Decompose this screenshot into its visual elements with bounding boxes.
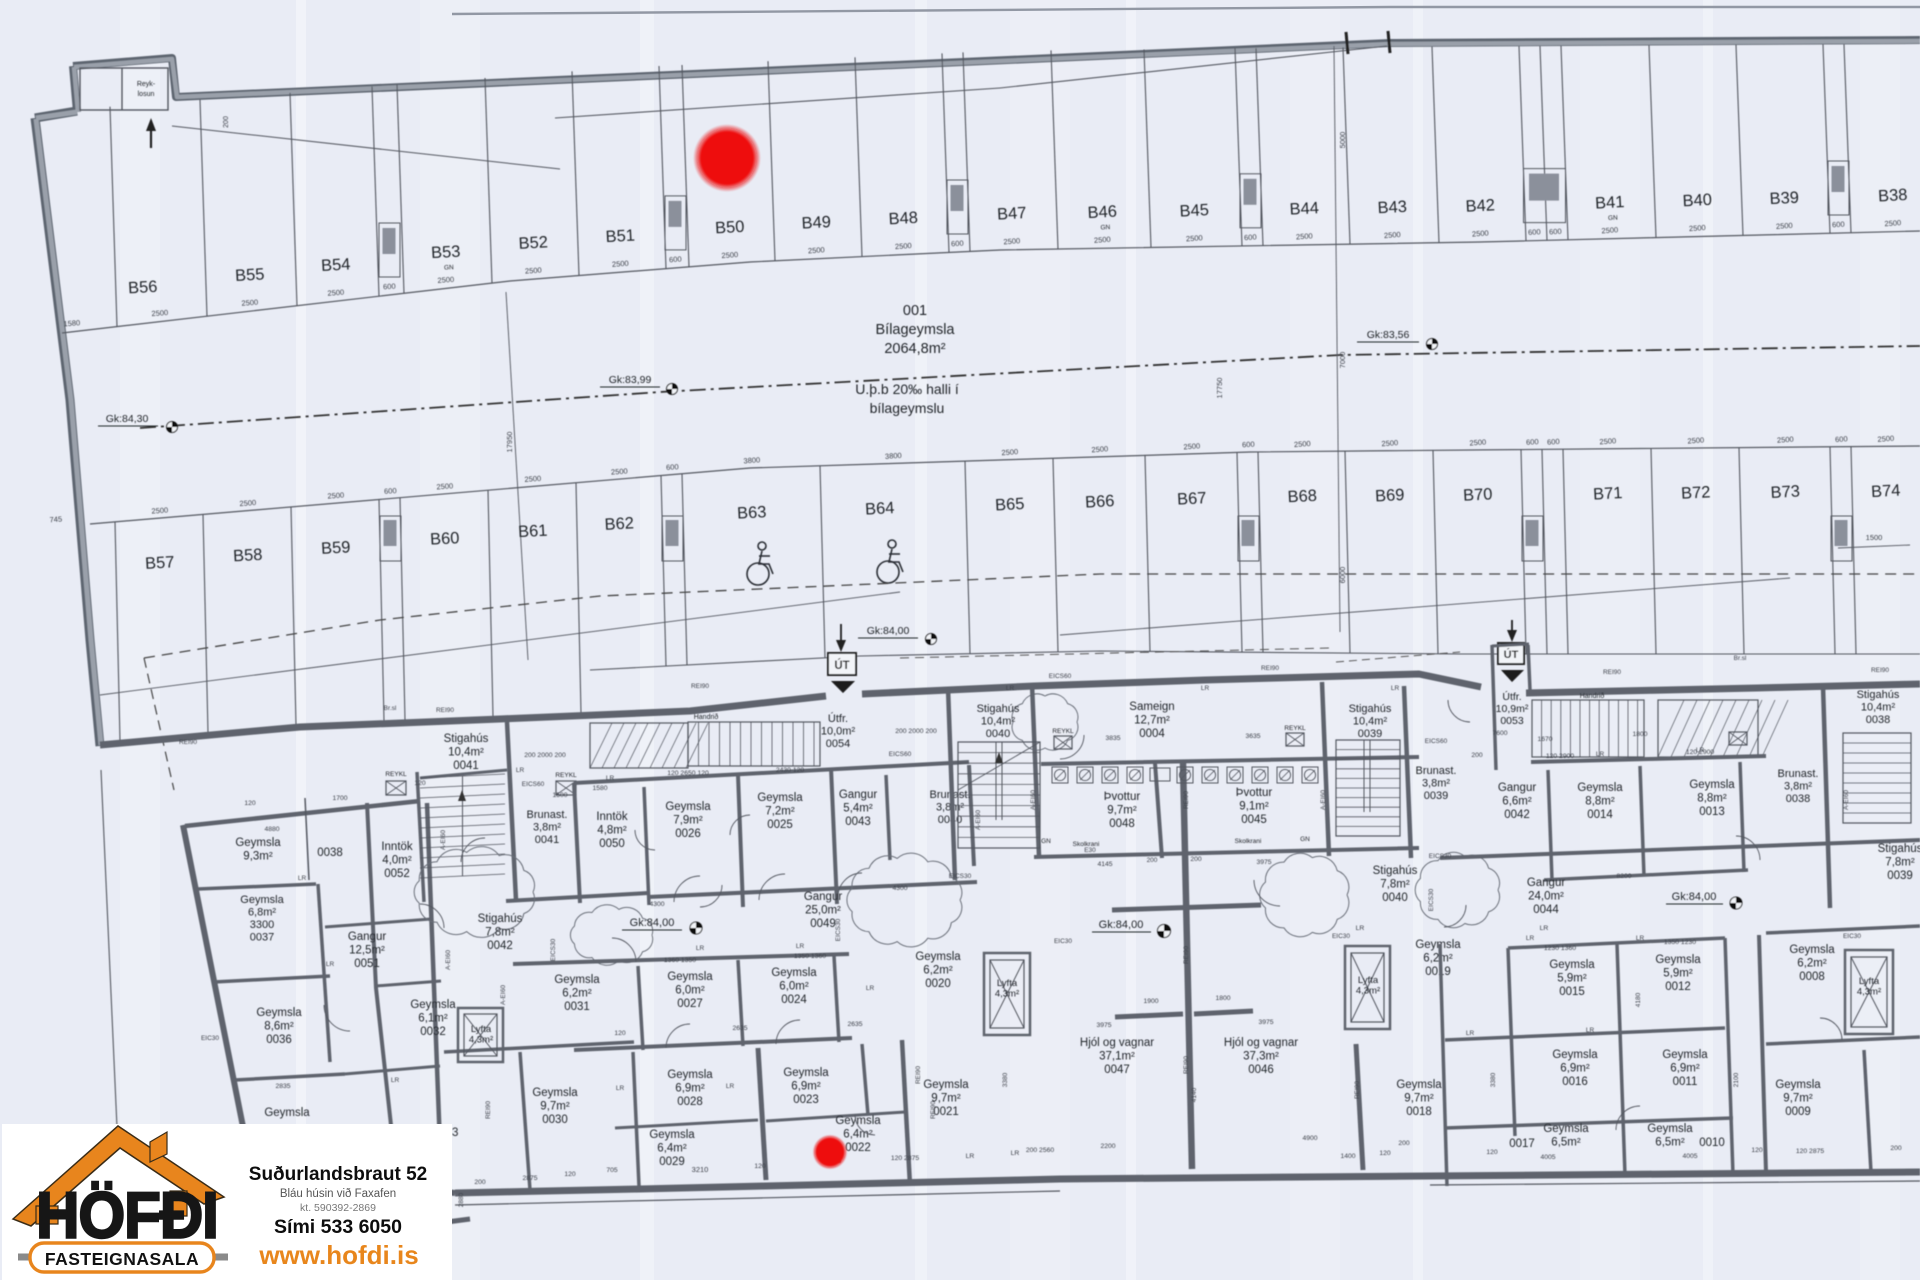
svg-text:LR: LR xyxy=(796,943,805,950)
svg-text:1350 1230: 1350 1230 xyxy=(1664,939,1696,946)
svg-text:3975: 3975 xyxy=(1256,859,1271,866)
svg-text:2500: 2500 xyxy=(327,491,344,501)
svg-text:4900: 4900 xyxy=(1302,1135,1317,1142)
svg-text:3800: 3800 xyxy=(885,451,902,461)
svg-text:B64: B64 xyxy=(865,499,895,519)
svg-text:Gk:84,00: Gk:84,00 xyxy=(630,917,675,929)
svg-text:Geymsla: Geymsla xyxy=(665,801,711,813)
svg-text:6,0m²: 6,0m² xyxy=(779,981,809,993)
svg-text:2500: 2500 xyxy=(808,245,825,255)
svg-text:8,6m²: 8,6m² xyxy=(264,1021,294,1033)
svg-text:2500: 2500 xyxy=(895,241,912,251)
svg-text:Lyfta: Lyfta xyxy=(1358,975,1379,986)
svg-text:EIC30: EIC30 xyxy=(1054,938,1072,945)
svg-text:2500: 2500 xyxy=(1294,439,1311,449)
svg-text:B72: B72 xyxy=(1681,483,1711,503)
svg-text:0011: 0011 xyxy=(1673,1076,1698,1088)
svg-text:2500: 2500 xyxy=(1091,444,1108,454)
svg-text:2500: 2500 xyxy=(1469,437,1486,447)
svg-text:B44: B44 xyxy=(1289,199,1319,219)
svg-text:4005: 4005 xyxy=(1682,1153,1697,1160)
svg-text:GN: GN xyxy=(1608,215,1618,223)
svg-text:LR: LR xyxy=(1201,685,1210,692)
svg-text:REI90: REI90 xyxy=(485,1101,492,1119)
svg-text:6,2m²: 6,2m² xyxy=(1423,953,1453,965)
svg-text:REI90: REI90 xyxy=(1354,1081,1361,1099)
svg-text:600: 600 xyxy=(1526,437,1539,447)
svg-text:0012: 0012 xyxy=(1665,981,1691,993)
svg-text:4,3m²: 4,3m² xyxy=(1356,986,1380,997)
svg-text:120: 120 xyxy=(244,800,256,807)
svg-text:Geymsla: Geymsla xyxy=(256,1007,302,1019)
svg-text:0014: 0014 xyxy=(1587,809,1613,821)
svg-text:EICS60: EICS60 xyxy=(1049,673,1072,680)
svg-text:3,8m²: 3,8m² xyxy=(533,822,561,834)
svg-text:Handrið: Handrið xyxy=(694,713,719,721)
svg-text:LR: LR xyxy=(1391,685,1400,692)
svg-text:Stigahús: Stigahús xyxy=(1373,865,1418,877)
svg-text:0026: 0026 xyxy=(675,828,701,840)
svg-text:0016: 0016 xyxy=(1562,1076,1588,1088)
svg-text:6,0m²: 6,0m² xyxy=(675,985,705,997)
svg-text:2500: 2500 xyxy=(1472,228,1489,238)
svg-text:Gangur: Gangur xyxy=(348,931,387,943)
svg-text:B74: B74 xyxy=(1871,482,1901,502)
svg-text:Geymsla: Geymsla xyxy=(1662,1049,1708,1061)
svg-text:6,2m²: 6,2m² xyxy=(1797,958,1827,970)
svg-text:Geymsla: Geymsla xyxy=(1789,944,1835,956)
svg-text:B73: B73 xyxy=(1770,482,1800,502)
svg-text:Gk:83,99: Gk:83,99 xyxy=(609,374,652,386)
svg-text:2500: 2500 xyxy=(1877,434,1894,444)
svg-text:6,9m²: 6,9m² xyxy=(1560,1063,1590,1075)
svg-text:200: 200 xyxy=(474,1179,486,1186)
svg-text:REYKL: REYKL xyxy=(1052,728,1074,735)
svg-text:EICS60: EICS60 xyxy=(1425,738,1448,745)
svg-text:B51: B51 xyxy=(605,227,635,247)
svg-text:B49: B49 xyxy=(801,213,831,233)
svg-text:2500: 2500 xyxy=(1384,230,1401,240)
svg-text:1700: 1700 xyxy=(332,795,347,802)
svg-text:6,1m²: 6,1m² xyxy=(418,1013,448,1025)
svg-text:7,2m²: 7,2m² xyxy=(765,806,795,818)
svg-text:2500: 2500 xyxy=(1186,233,1203,243)
svg-text:12,5m²: 12,5m² xyxy=(349,945,385,957)
svg-text:B42: B42 xyxy=(1465,196,1495,216)
svg-text:Inntök: Inntök xyxy=(596,811,628,823)
svg-text:2880: 2880 xyxy=(458,1192,465,1207)
svg-text:3800: 3800 xyxy=(743,455,760,465)
svg-text:ÚT: ÚT xyxy=(834,659,849,672)
svg-text:0004: 0004 xyxy=(1139,728,1165,740)
svg-text:Stigahús: Stigahús xyxy=(444,733,489,745)
svg-text:Stigahús: Stigahús xyxy=(478,913,523,925)
svg-text:37,1m²: 37,1m² xyxy=(1099,1051,1135,1063)
svg-text:0045: 0045 xyxy=(1241,814,1267,826)
svg-text:Geymsla: Geymsla xyxy=(554,974,600,986)
svg-text:2100: 2100 xyxy=(1733,1072,1740,1087)
svg-text:0038: 0038 xyxy=(1786,793,1810,805)
svg-text:9,3m²: 9,3m² xyxy=(243,851,273,863)
svg-text:EICS30: EICS30 xyxy=(1429,853,1452,860)
svg-text:LR: LR xyxy=(966,1153,975,1160)
svg-text:5,9m²: 5,9m² xyxy=(1663,968,1693,980)
svg-text:4140: 4140 xyxy=(1191,1087,1198,1102)
svg-text:LR: LR xyxy=(616,1085,625,1092)
svg-text:REI90: REI90 xyxy=(1183,1056,1190,1074)
svg-text:3,8m²: 3,8m² xyxy=(1784,781,1812,793)
svg-text:EICS60: EICS60 xyxy=(889,751,912,758)
svg-text:Geymsla: Geymsla xyxy=(1396,1079,1442,1091)
svg-text:0013: 0013 xyxy=(1699,806,1725,818)
svg-text:0039: 0039 xyxy=(1358,728,1382,740)
svg-text:3835: 3835 xyxy=(1105,735,1120,742)
svg-text:B63: B63 xyxy=(737,503,767,523)
svg-text:REI90: REI90 xyxy=(1261,665,1279,672)
svg-text:0024: 0024 xyxy=(781,994,807,1006)
svg-text:LR: LR xyxy=(696,945,705,952)
svg-text:Hjól og vagnar: Hjól og vagnar xyxy=(1080,1037,1154,1049)
svg-text:6,4m²: 6,4m² xyxy=(657,1143,687,1155)
svg-text:Geymsla: Geymsla xyxy=(757,792,803,804)
svg-text:B47: B47 xyxy=(997,204,1027,224)
svg-text:GN: GN xyxy=(1300,836,1310,843)
svg-text:EIC30: EIC30 xyxy=(201,1035,219,1042)
svg-text:600: 600 xyxy=(1244,232,1257,242)
svg-text:REI90: REI90 xyxy=(1183,946,1190,964)
svg-text:0032: 0032 xyxy=(420,1026,446,1038)
svg-text:1400: 1400 xyxy=(1340,1153,1355,1160)
svg-text:2500: 2500 xyxy=(1689,223,1706,233)
svg-text:Br.sl: Br.sl xyxy=(384,705,397,712)
svg-text:Gangur: Gangur xyxy=(1527,877,1566,889)
svg-text:B55: B55 xyxy=(235,265,265,285)
svg-text:0040: 0040 xyxy=(1382,892,1408,904)
svg-text:A-EI60: A-EI60 xyxy=(1320,790,1327,810)
svg-text:REI90: REI90 xyxy=(1871,667,1889,674)
svg-text:4,3m²: 4,3m² xyxy=(1857,987,1881,998)
svg-text:0040: 0040 xyxy=(986,728,1010,740)
svg-text:5,9m²: 5,9m² xyxy=(1557,973,1587,985)
svg-text:REI90: REI90 xyxy=(930,1101,937,1119)
svg-text:2500: 2500 xyxy=(1777,435,1794,445)
svg-text:4005: 4005 xyxy=(1540,1154,1555,1161)
svg-text:LR: LR xyxy=(298,875,307,882)
svg-text:10,4m²: 10,4m² xyxy=(981,716,1016,728)
svg-text:Handrið: Handrið xyxy=(1580,692,1605,700)
svg-text:2500: 2500 xyxy=(1884,218,1901,228)
svg-text:2500: 2500 xyxy=(1094,235,1111,245)
svg-text:Geymsla: Geymsla xyxy=(923,1079,969,1091)
svg-text:LR: LR xyxy=(1011,1150,1020,1157)
svg-text:B48: B48 xyxy=(888,209,918,229)
svg-text:200: 200 xyxy=(1190,856,1202,863)
svg-text:600: 600 xyxy=(1549,227,1562,237)
svg-text:1350 1360: 1350 1360 xyxy=(794,953,826,960)
svg-text:2500: 2500 xyxy=(524,474,541,484)
svg-text:2430 120: 2430 120 xyxy=(776,767,805,774)
svg-text:B69: B69 xyxy=(1375,486,1405,506)
svg-text:Geymsla: Geymsla xyxy=(771,967,817,979)
svg-text:1670: 1670 xyxy=(1537,736,1552,743)
svg-text:2500: 2500 xyxy=(1296,231,1313,241)
svg-text:120 2875: 120 2875 xyxy=(1796,1148,1825,1155)
svg-text:0051: 0051 xyxy=(354,958,380,970)
svg-text:B66: B66 xyxy=(1085,492,1115,512)
svg-text:25,0m²: 25,0m² xyxy=(805,905,841,917)
svg-text:3975: 3975 xyxy=(1096,1022,1111,1029)
svg-text:Útfr.: Útfr. xyxy=(1502,690,1521,703)
svg-text:EICS60: EICS60 xyxy=(522,781,545,788)
svg-text:Lyfta: Lyfta xyxy=(471,1024,492,1035)
svg-text:0050: 0050 xyxy=(599,838,625,850)
svg-text:2500: 2500 xyxy=(241,298,258,308)
svg-text:4,3m²: 4,3m² xyxy=(995,989,1019,1000)
svg-text:6,9m²: 6,9m² xyxy=(675,1083,705,1095)
svg-text:2500: 2500 xyxy=(151,308,168,318)
svg-text:120: 120 xyxy=(564,1171,576,1178)
svg-text:Gk:84,00: Gk:84,00 xyxy=(867,625,910,637)
svg-text:3635: 3635 xyxy=(1245,733,1260,740)
svg-text:GN: GN xyxy=(444,264,454,272)
svg-text:ÚT: ÚT xyxy=(1504,648,1519,661)
svg-text:3210: 3210 xyxy=(692,1165,709,1174)
svg-text:5,4m²: 5,4m² xyxy=(843,803,873,815)
svg-text:B46: B46 xyxy=(1087,203,1117,223)
svg-text:120: 120 xyxy=(754,1163,766,1170)
svg-text:REI90: REI90 xyxy=(1183,791,1190,809)
svg-text:600: 600 xyxy=(666,462,679,472)
svg-text:6,5m²: 6,5m² xyxy=(1655,1137,1685,1149)
svg-text:Geymsla: Geymsla xyxy=(240,894,284,906)
svg-text:B41: B41 xyxy=(1595,193,1625,213)
svg-text:120: 120 xyxy=(614,1030,626,1037)
svg-text:Geymsla: Geymsla xyxy=(532,1087,578,1099)
svg-text:2500: 2500 xyxy=(1183,441,1200,451)
svg-text:REI90: REI90 xyxy=(179,739,197,746)
svg-text:4300: 4300 xyxy=(649,901,664,908)
svg-text:Geymsla: Geymsla xyxy=(915,951,961,963)
svg-text:0046: 0046 xyxy=(1248,1064,1274,1076)
svg-text:8200: 8200 xyxy=(1616,873,1631,880)
svg-text:17750: 17750 xyxy=(1215,378,1224,399)
svg-text:0049: 0049 xyxy=(810,918,836,930)
svg-text:2500: 2500 xyxy=(721,250,738,260)
svg-text:Geymsla: Geymsla xyxy=(264,1107,310,1119)
svg-text:2500: 2500 xyxy=(525,266,542,276)
svg-text:200: 200 xyxy=(1147,857,1158,864)
svg-text:Þvottur: Þvottur xyxy=(1236,787,1273,799)
svg-text:1800: 1800 xyxy=(1215,995,1230,1002)
svg-text:Geymsla: Geymsla xyxy=(1543,1123,1589,1135)
svg-text:600: 600 xyxy=(951,239,964,249)
svg-text:120 2875: 120 2875 xyxy=(891,1155,920,1162)
svg-text:Inntök: Inntök xyxy=(381,841,413,853)
svg-text:0027: 0027 xyxy=(677,998,703,1010)
svg-text:120: 120 xyxy=(1486,1149,1498,1156)
svg-text:EICS30: EICS30 xyxy=(835,918,842,941)
svg-text:A-EI60: A-EI60 xyxy=(975,810,982,830)
svg-text:EIC30: EIC30 xyxy=(1843,933,1861,940)
svg-text:6,4m²: 6,4m² xyxy=(843,1129,873,1141)
svg-text:U.þ.b 20‰ halli í: U.þ.b 20‰ halli í xyxy=(855,381,959,397)
svg-text:LR: LR xyxy=(1596,751,1605,758)
svg-text:0018: 0018 xyxy=(1406,1106,1432,1118)
svg-text:Sameign: Sameign xyxy=(1129,701,1174,713)
svg-text:0042: 0042 xyxy=(1504,809,1530,821)
svg-text:LR: LR xyxy=(866,985,875,992)
svg-text:GN: GN xyxy=(1041,838,1051,845)
svg-text:Gangur: Gangur xyxy=(804,891,843,903)
svg-text:2500: 2500 xyxy=(1776,221,1793,231)
svg-text:Hjól og vagnar: Hjól og vagnar xyxy=(1224,1037,1298,1049)
svg-text:200: 200 xyxy=(1398,1140,1410,1147)
svg-text:0030: 0030 xyxy=(542,1114,568,1126)
svg-text:0009: 0009 xyxy=(1785,1106,1811,1118)
svg-text:EICS30: EICS30 xyxy=(1428,888,1435,911)
svg-text:Geymsla: Geymsla xyxy=(1775,1079,1821,1091)
svg-text:4145: 4145 xyxy=(1097,861,1112,868)
svg-text:4880: 4880 xyxy=(264,826,279,833)
svg-text:4180: 4180 xyxy=(1635,992,1642,1007)
svg-text:9,7m²: 9,7m² xyxy=(1783,1093,1813,1105)
svg-text:6,5m²: 6,5m² xyxy=(1551,1137,1581,1149)
svg-text:Brunast.: Brunast. xyxy=(1778,768,1819,780)
svg-text:3,8m²: 3,8m² xyxy=(1422,778,1450,790)
svg-text:B50: B50 xyxy=(715,218,745,238)
svg-text:A-EI60: A-EI60 xyxy=(500,985,507,1005)
svg-text:LR: LR xyxy=(1466,1030,1475,1037)
svg-text:120: 120 xyxy=(1751,1147,1763,1154)
svg-text:120 2900: 120 2900 xyxy=(1686,749,1715,756)
svg-text:B65: B65 xyxy=(995,495,1025,515)
svg-text:2500: 2500 xyxy=(437,275,454,285)
svg-text:B70: B70 xyxy=(1463,485,1493,505)
svg-text:9,7m²: 9,7m² xyxy=(1107,805,1137,817)
svg-text:0053: 0053 xyxy=(1500,715,1524,727)
svg-text:Geymsla: Geymsla xyxy=(1655,954,1701,966)
svg-text:2500: 2500 xyxy=(1599,436,1616,446)
svg-text:17950: 17950 xyxy=(505,432,514,453)
svg-text:bílageymslu: bílageymslu xyxy=(870,400,945,416)
svg-text:REI90: REI90 xyxy=(1603,669,1621,676)
svg-text:Stigahús: Stigahús xyxy=(1857,689,1900,701)
svg-text:001: 001 xyxy=(903,303,927,319)
svg-text:0041: 0041 xyxy=(535,834,559,846)
svg-text:9,7m²: 9,7m² xyxy=(1404,1093,1434,1105)
svg-text:4300: 4300 xyxy=(892,885,907,892)
svg-text:0041: 0041 xyxy=(453,760,479,772)
svg-text:Geymsla: Geymsla xyxy=(649,1129,695,1141)
svg-text:120 2900: 120 2900 xyxy=(1546,753,1575,760)
svg-text:0010: 0010 xyxy=(1699,1137,1725,1149)
svg-text:0017: 0017 xyxy=(1509,1138,1535,1150)
svg-text:Geymsla: Geymsla xyxy=(1552,1049,1598,1061)
svg-text:7,8m²: 7,8m² xyxy=(1885,857,1915,869)
svg-text:FASTEIGNASALA: FASTEIGNASALA xyxy=(45,1249,199,1269)
svg-text:Geymsla: Geymsla xyxy=(835,1115,881,1127)
svg-text:0019: 0019 xyxy=(1425,966,1451,978)
svg-text:200 2000 200: 200 2000 200 xyxy=(524,752,566,759)
svg-text:2500: 2500 xyxy=(151,506,168,516)
svg-text:Gk:84,00: Gk:84,00 xyxy=(1099,919,1144,931)
svg-text:B59: B59 xyxy=(321,538,351,558)
svg-text:E30: E30 xyxy=(1084,847,1096,854)
svg-text:B62: B62 xyxy=(604,514,634,534)
svg-text:0015: 0015 xyxy=(1559,986,1585,998)
svg-text:7600: 7600 xyxy=(1492,730,1507,737)
svg-text:Gk:83,56: Gk:83,56 xyxy=(1367,329,1410,341)
svg-text:0029: 0029 xyxy=(659,1156,685,1168)
svg-text:EICS30: EICS30 xyxy=(550,938,557,961)
svg-text:0008: 0008 xyxy=(1799,971,1825,983)
svg-text:10,9m²: 10,9m² xyxy=(1496,703,1529,715)
svg-text:0031: 0031 xyxy=(564,1001,590,1013)
svg-text:10,4m²: 10,4m² xyxy=(1353,716,1388,728)
svg-text:LR: LR xyxy=(1526,935,1535,942)
svg-text:2500: 2500 xyxy=(1687,435,1704,445)
svg-text:600: 600 xyxy=(1832,220,1845,230)
svg-text:Reyk-: Reyk- xyxy=(137,81,156,88)
svg-text:LR: LR xyxy=(726,1083,735,1090)
svg-text:REI90: REI90 xyxy=(691,683,709,690)
svg-text:600: 600 xyxy=(1835,434,1848,444)
svg-text:7,8m²: 7,8m² xyxy=(1380,879,1410,891)
svg-text:REI90: REI90 xyxy=(436,707,454,714)
svg-text:B39: B39 xyxy=(1769,189,1799,209)
svg-text:Lyfta: Lyfta xyxy=(1859,976,1880,987)
svg-text:0047: 0047 xyxy=(1104,1064,1130,1076)
svg-text:2500: 2500 xyxy=(1001,447,1018,457)
svg-text:2635: 2635 xyxy=(732,1025,747,1032)
svg-text:2500: 2500 xyxy=(1601,225,1618,235)
svg-text:Stigahús: Stigahús xyxy=(1878,843,1920,855)
svg-text:GN: GN xyxy=(1100,224,1110,232)
svg-text:7,9m²: 7,9m² xyxy=(673,815,703,827)
svg-text:600: 600 xyxy=(1242,440,1255,450)
svg-text:Geymsla: Geymsla xyxy=(1577,782,1623,794)
svg-text:LR: LR xyxy=(1586,1027,1595,1034)
svg-text:37,3m²: 37,3m² xyxy=(1243,1051,1279,1063)
svg-text:7000: 7000 xyxy=(1338,352,1347,369)
svg-text:Bílageymsla: Bílageymsla xyxy=(876,322,956,338)
svg-text:0043: 0043 xyxy=(845,816,871,828)
svg-text:6,9m²: 6,9m² xyxy=(791,1081,821,1093)
svg-text:2500: 2500 xyxy=(327,288,344,298)
svg-text:Geymsla: Geymsla xyxy=(667,971,713,983)
svg-text:Gangur: Gangur xyxy=(1498,782,1537,794)
svg-text:2200: 2200 xyxy=(1100,1143,1115,1150)
svg-text:Suðurlandsbraut 52: Suðurlandsbraut 52 xyxy=(249,1164,427,1185)
svg-text:0044: 0044 xyxy=(1533,904,1559,916)
svg-text:200: 200 xyxy=(1890,1145,1902,1152)
svg-text:Stigahús: Stigahús xyxy=(1349,703,1392,715)
svg-text:600: 600 xyxy=(384,486,397,496)
svg-text:Skolkrani: Skolkrani xyxy=(1235,838,1262,845)
svg-text:0022: 0022 xyxy=(845,1142,871,1154)
svg-text:Geymsla: Geymsla xyxy=(667,1069,713,1081)
svg-text:2064,8m²: 2064,8m² xyxy=(884,341,945,357)
svg-text:0037: 0037 xyxy=(250,932,274,944)
svg-text:200: 200 xyxy=(223,116,230,128)
svg-text:0038: 0038 xyxy=(1866,714,1890,726)
svg-text:8,8m²: 8,8m² xyxy=(1697,793,1727,805)
svg-text:Brunast.: Brunast. xyxy=(1416,765,1457,777)
svg-text:200 2000 200: 200 2000 200 xyxy=(895,728,937,735)
svg-text:B45: B45 xyxy=(1179,201,1209,221)
svg-text:0052: 0052 xyxy=(384,868,410,880)
svg-text:Stigahús: Stigahús xyxy=(977,703,1020,715)
